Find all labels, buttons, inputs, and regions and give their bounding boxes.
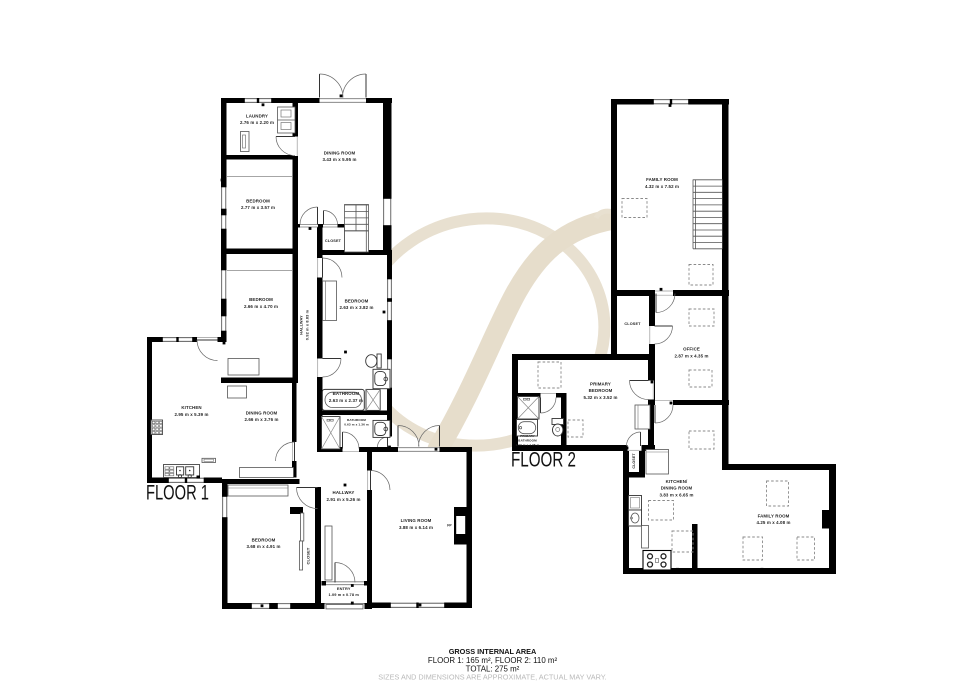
svg-text:5.32 m x 3.52 m: 5.32 m x 3.52 m (583, 395, 617, 400)
svg-text:CLOSET: CLOSET (305, 547, 310, 564)
svg-text:2.66 m x 3.76 m: 2.66 m x 3.76 m (244, 417, 278, 422)
svg-text:LIVING ROOM: LIVING ROOM (401, 518, 432, 523)
svg-text:HALLWAY: HALLWAY (298, 315, 303, 335)
svg-text:DINING ROOM: DINING ROOM (324, 150, 356, 155)
svg-text:CLOSET: CLOSET (325, 239, 342, 243)
svg-text:SIZES AND DIMENSIONS ARE APPRO: SIZES AND DIMENSIONS ARE APPROXIMATE, AC… (378, 672, 606, 681)
svg-text:FAMILY ROOM: FAMILY ROOM (758, 513, 790, 518)
svg-text:KITCHEN: KITCHEN (181, 405, 201, 410)
svg-text:FLOOR 1: FLOOR 1 (146, 481, 209, 505)
svg-text:HALLWAY: HALLWAY (333, 490, 355, 495)
svg-text:4.25 m x 4.08 m: 4.25 m x 4.08 m (756, 520, 790, 525)
svg-text:FLOOR 2: FLOOR 2 (511, 448, 576, 472)
svg-text:FAMILY ROOM: FAMILY ROOM (646, 177, 678, 182)
svg-text:3.68 m x 4.91 m: 3.68 m x 4.91 m (246, 544, 280, 549)
svg-text:PRIMARY: PRIMARY (590, 381, 611, 386)
svg-text:0.92 m x 8.83 m: 0.92 m x 8.83 m (304, 309, 309, 340)
svg-text:BEDROOM: BEDROOM (252, 537, 276, 542)
svg-text:LAUNDRY: LAUNDRY (246, 113, 268, 118)
svg-text:4.32 m x 7.52 m: 4.32 m x 7.52 m (645, 184, 679, 189)
svg-text:PRIMARY: PRIMARY (520, 434, 535, 438)
svg-text:KITCHEN/: KITCHEN/ (666, 479, 688, 484)
svg-text:2.87 m x 4.35 m: 2.87 m x 4.35 m (674, 353, 708, 358)
svg-text:BEDROOM: BEDROOM (345, 298, 369, 303)
svg-text:0.63 m x 1.36 m: 0.63 m x 1.36 m (344, 423, 369, 427)
svg-text:ENTRY: ENTRY (337, 586, 351, 591)
svg-text:DINING ROOM: DINING ROOM (246, 410, 278, 415)
svg-text:2.77 m x 3.57 m: 2.77 m x 3.57 m (241, 205, 275, 210)
svg-text:2.91 m x 5.26 m: 2.91 m x 5.26 m (326, 497, 360, 502)
svg-text:3.83 m x 6.65 m: 3.83 m x 6.65 m (659, 493, 693, 498)
svg-text:1.09 m x 0.78 m: 1.09 m x 0.78 m (328, 592, 359, 597)
svg-text:CLOSET: CLOSET (632, 453, 636, 469)
svg-text:2.63 m x 2.37 m: 2.63 m x 2.37 m (329, 398, 363, 403)
svg-text:3.43 m x 5.95 m: 3.43 m x 5.95 m (322, 157, 356, 162)
svg-text:BATHROOM: BATHROOM (333, 391, 360, 396)
svg-text:2.76 m x 2.20 m: 2.76 m x 2.20 m (240, 120, 274, 125)
svg-text:2.95 m x 5.39 m: 2.95 m x 5.39 m (174, 412, 208, 417)
svg-text:FP: FP (447, 523, 452, 527)
svg-text:DINING ROOM: DINING ROOM (661, 486, 693, 491)
svg-text:BEDROOM: BEDROOM (589, 388, 613, 393)
svg-text:1.09 m x 1.95 m: 1.09 m x 1.95 m (516, 443, 540, 447)
svg-text:3.88 m x 6.14 m: 3.88 m x 6.14 m (399, 525, 433, 530)
svg-text:BEDROOM: BEDROOM (246, 198, 270, 203)
svg-text:OFFICE: OFFICE (683, 347, 700, 352)
svg-text:BATHROOM: BATHROOM (347, 418, 366, 422)
svg-text:BEDROOM: BEDROOM (249, 297, 273, 302)
svg-text:CLOSET: CLOSET (624, 322, 641, 326)
svg-text:2.63 m x 3.82 m: 2.63 m x 3.82 m (339, 305, 373, 310)
svg-text:BATHROOM: BATHROOM (518, 438, 537, 442)
svg-text:2.66 m x 4.70 m: 2.66 m x 4.70 m (244, 304, 278, 309)
svg-text:GROSS INTERNAL AREA: GROSS INTERNAL AREA (449, 647, 537, 656)
